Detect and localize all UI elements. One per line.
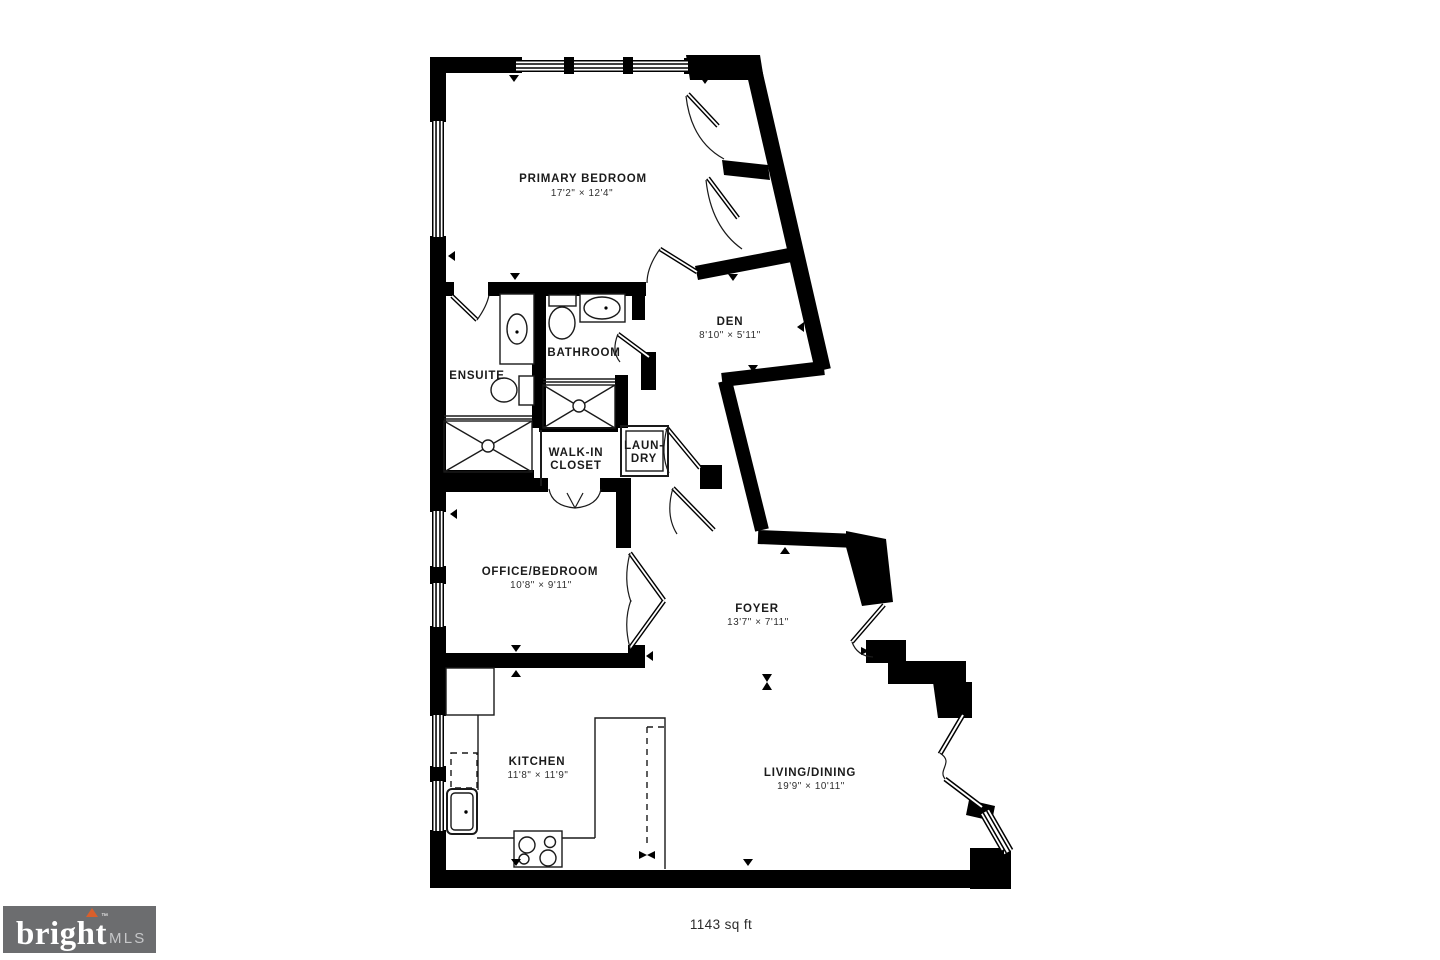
bathroom-label: BATHROOM [547, 347, 620, 359]
window-top [516, 57, 688, 74]
bathroom-tub-icon [543, 379, 615, 428]
hall-door-upper [664, 428, 700, 473]
office-bedroom-label: OFFICE/BEDROOM [482, 566, 599, 578]
stove-icon [514, 831, 562, 867]
kitchen-sink-icon [447, 789, 477, 834]
office-door-upper [627, 553, 664, 602]
bathroom-sink-icon [580, 294, 625, 322]
brightmls-logo: bright ™ MLS [3, 906, 156, 953]
opening-marker-foyer [762, 674, 772, 690]
ensuite-door [452, 295, 489, 320]
glazed-panel-living [945, 779, 982, 807]
kitchen-pantry-box [446, 668, 494, 715]
primary-bedroom-dims: 17'2" × 12'4" [551, 188, 613, 199]
closet-french-doors [549, 489, 601, 508]
foyer-label: FOYER [735, 603, 779, 615]
walk-in-closet-label-line2: CLOSET [550, 460, 601, 472]
living-dining-dims: 19'9" × 10'11" [777, 781, 845, 792]
kitchen-dims: 11'8" × 11'9" [508, 770, 569, 781]
logo-suffix-text: MLS [109, 930, 146, 947]
living-dining-label: LIVING/DINING [764, 767, 856, 779]
total-area-label: 1143 sq ft [690, 917, 752, 932]
walk-in-closet-label-line1: WALK-IN [549, 447, 604, 459]
laundry-label-line2: DRY [631, 453, 657, 465]
den-casement-window-upper [686, 94, 724, 159]
ensuite-vanity-sink-icon [500, 294, 534, 364]
ensuite-label: ENSUITE [449, 370, 504, 382]
opening-marker-kitchen [639, 851, 655, 859]
window-bottom-right [985, 812, 1008, 852]
logo-tm-text: ™ [101, 913, 108, 920]
floor-plan-drawing: PRIMARY BEDROOM 17'2" × 12'4" DEN 8'10" … [0, 0, 1440, 960]
ensuite-shower-icon [444, 416, 532, 472]
primary-bedroom-door [647, 249, 697, 283]
glazed-panel-foyer [940, 715, 963, 780]
kitchen-label: KITCHEN [509, 756, 566, 768]
office-bedroom-dims: 10'8" × 9'11" [510, 580, 572, 591]
office-door-lower [627, 600, 664, 648]
den-casement-window-lower [706, 178, 742, 249]
primary-bedroom-label: PRIMARY BEDROOM [519, 173, 647, 185]
kitchen-peninsula [595, 718, 665, 869]
logo-brand-text: bright [16, 916, 107, 952]
foyer-dims: 13'7" × 7'11" [727, 617, 789, 628]
den-dims: 8'10" × 5'11" [699, 330, 761, 341]
den-label: DEN [717, 316, 744, 328]
laundry-label-line1: LAUN- [624, 440, 664, 452]
hall-door-lower [670, 488, 714, 534]
bathroom-toilet-icon [549, 295, 576, 339]
floor-plan-page: PRIMARY BEDROOM 17'2" × 12'4" DEN 8'10" … [0, 0, 1440, 960]
